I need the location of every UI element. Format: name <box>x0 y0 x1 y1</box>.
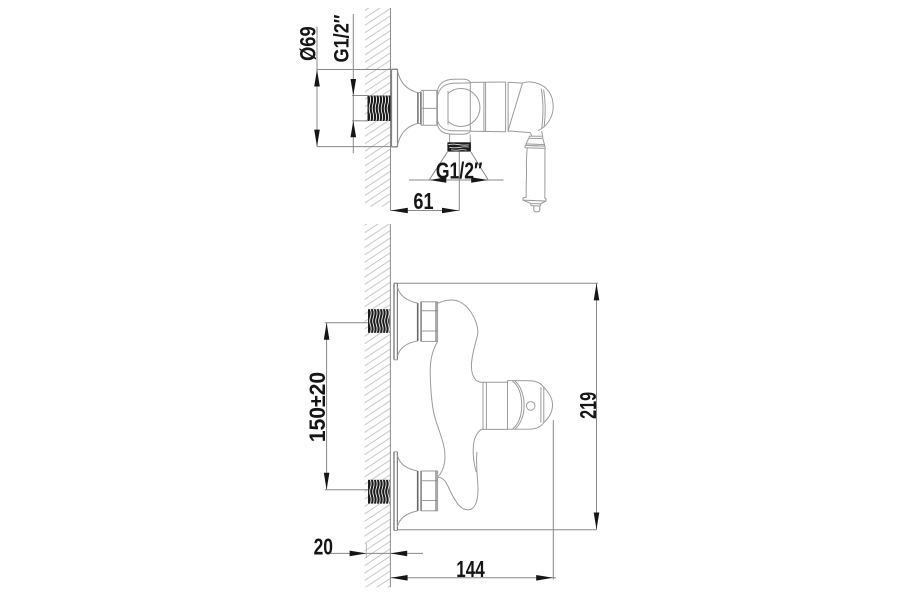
svg-text:219: 219 <box>575 392 601 419</box>
svg-text:144: 144 <box>456 556 485 582</box>
svg-text:Ø69: Ø69 <box>296 26 321 61</box>
svg-text:61: 61 <box>413 188 433 214</box>
svg-text:G1/2″: G1/2″ <box>436 158 483 184</box>
svg-text:150±20: 150±20 <box>305 372 330 443</box>
svg-text:G1/2″: G1/2″ <box>331 15 354 63</box>
svg-text:20: 20 <box>314 534 333 560</box>
